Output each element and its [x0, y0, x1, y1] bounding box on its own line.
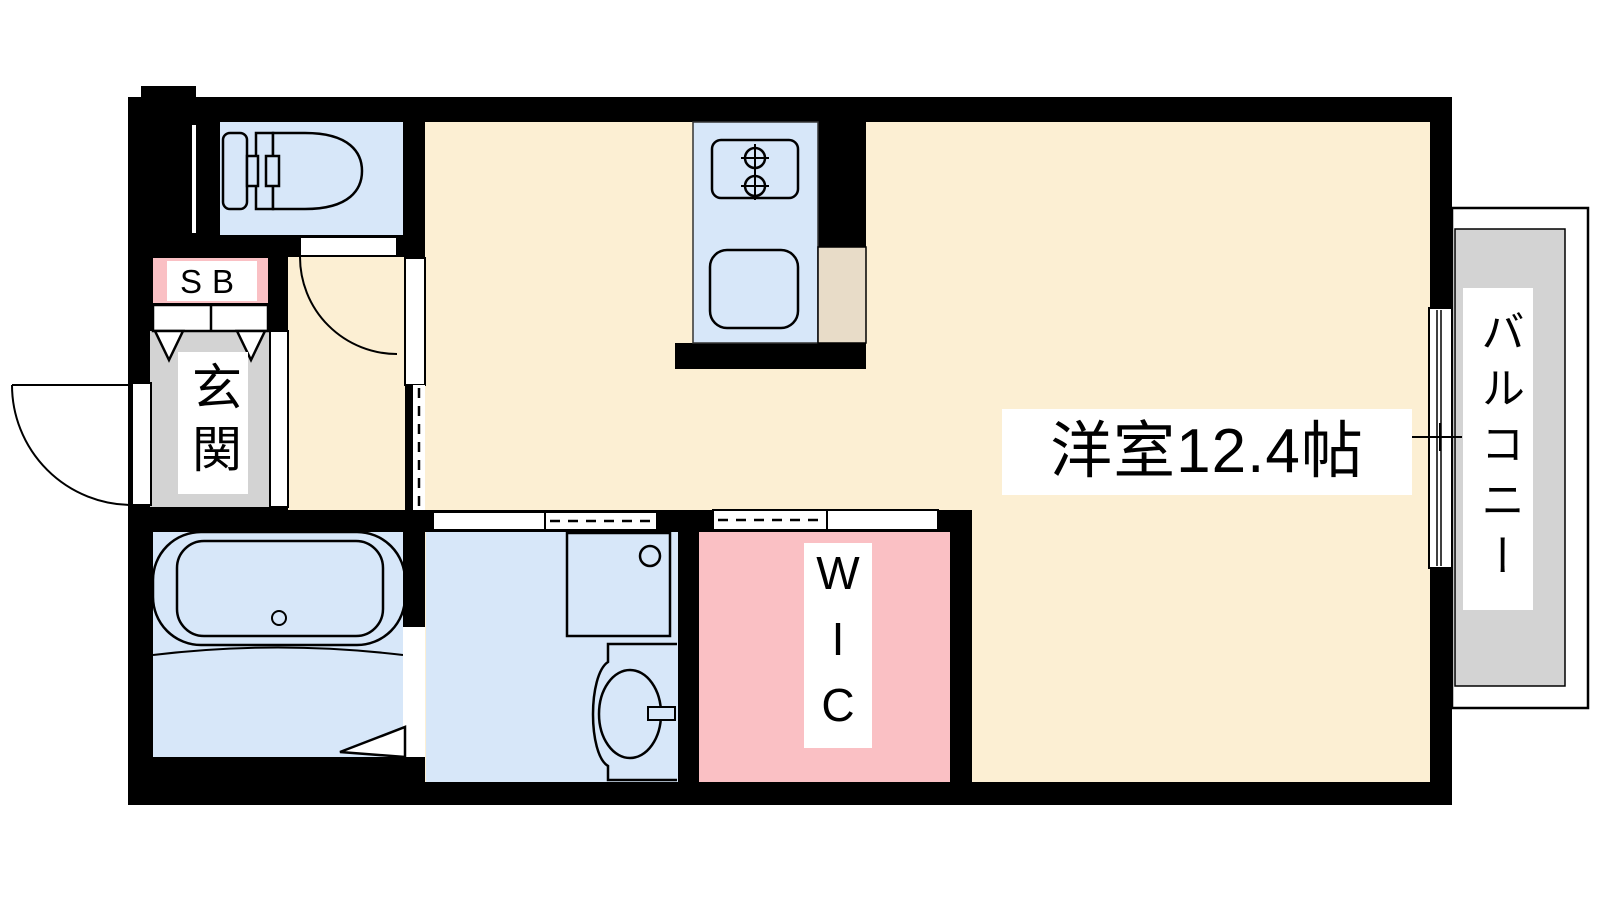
living-room-label: 洋室12.4帖 — [1002, 409, 1412, 495]
bathroom-door-opening — [403, 627, 425, 757]
toilet-bowl-icon — [273, 133, 362, 209]
refrigerator-space — [818, 247, 866, 343]
kitchen-sink-icon — [710, 250, 798, 328]
toilet-handle — [247, 156, 258, 186]
shoe-box-label: SB — [167, 261, 257, 301]
wic-label: WIC — [804, 543, 872, 748]
entry-door-leaf — [132, 383, 151, 505]
floor-plan: 洋室12.4帖 バルコニー WIC 玄関 SB — [0, 0, 1600, 900]
toilet-window — [192, 125, 196, 233]
hallway-floor — [288, 257, 405, 510]
kitchen-bottom-wall — [675, 343, 866, 369]
wall-bump — [141, 86, 196, 100]
kitchen-side-wall — [818, 122, 866, 247]
entrance-step — [270, 331, 288, 507]
washroom-door-panel — [433, 512, 545, 530]
balcony-label: バルコニー — [1463, 288, 1533, 610]
wic-door-panel — [827, 510, 938, 530]
hallway-opening — [405, 258, 425, 385]
entry-door-arc — [12, 385, 132, 505]
vanity-tap-icon — [648, 707, 675, 720]
toilet-seat-tab — [266, 156, 279, 186]
toilet-tank-icon — [223, 133, 247, 209]
entrance-label: 玄関 — [178, 352, 248, 494]
wic-right-wall — [950, 532, 972, 782]
toilet-door-leaf — [300, 237, 397, 256]
washroom-wic-wall — [678, 532, 699, 782]
